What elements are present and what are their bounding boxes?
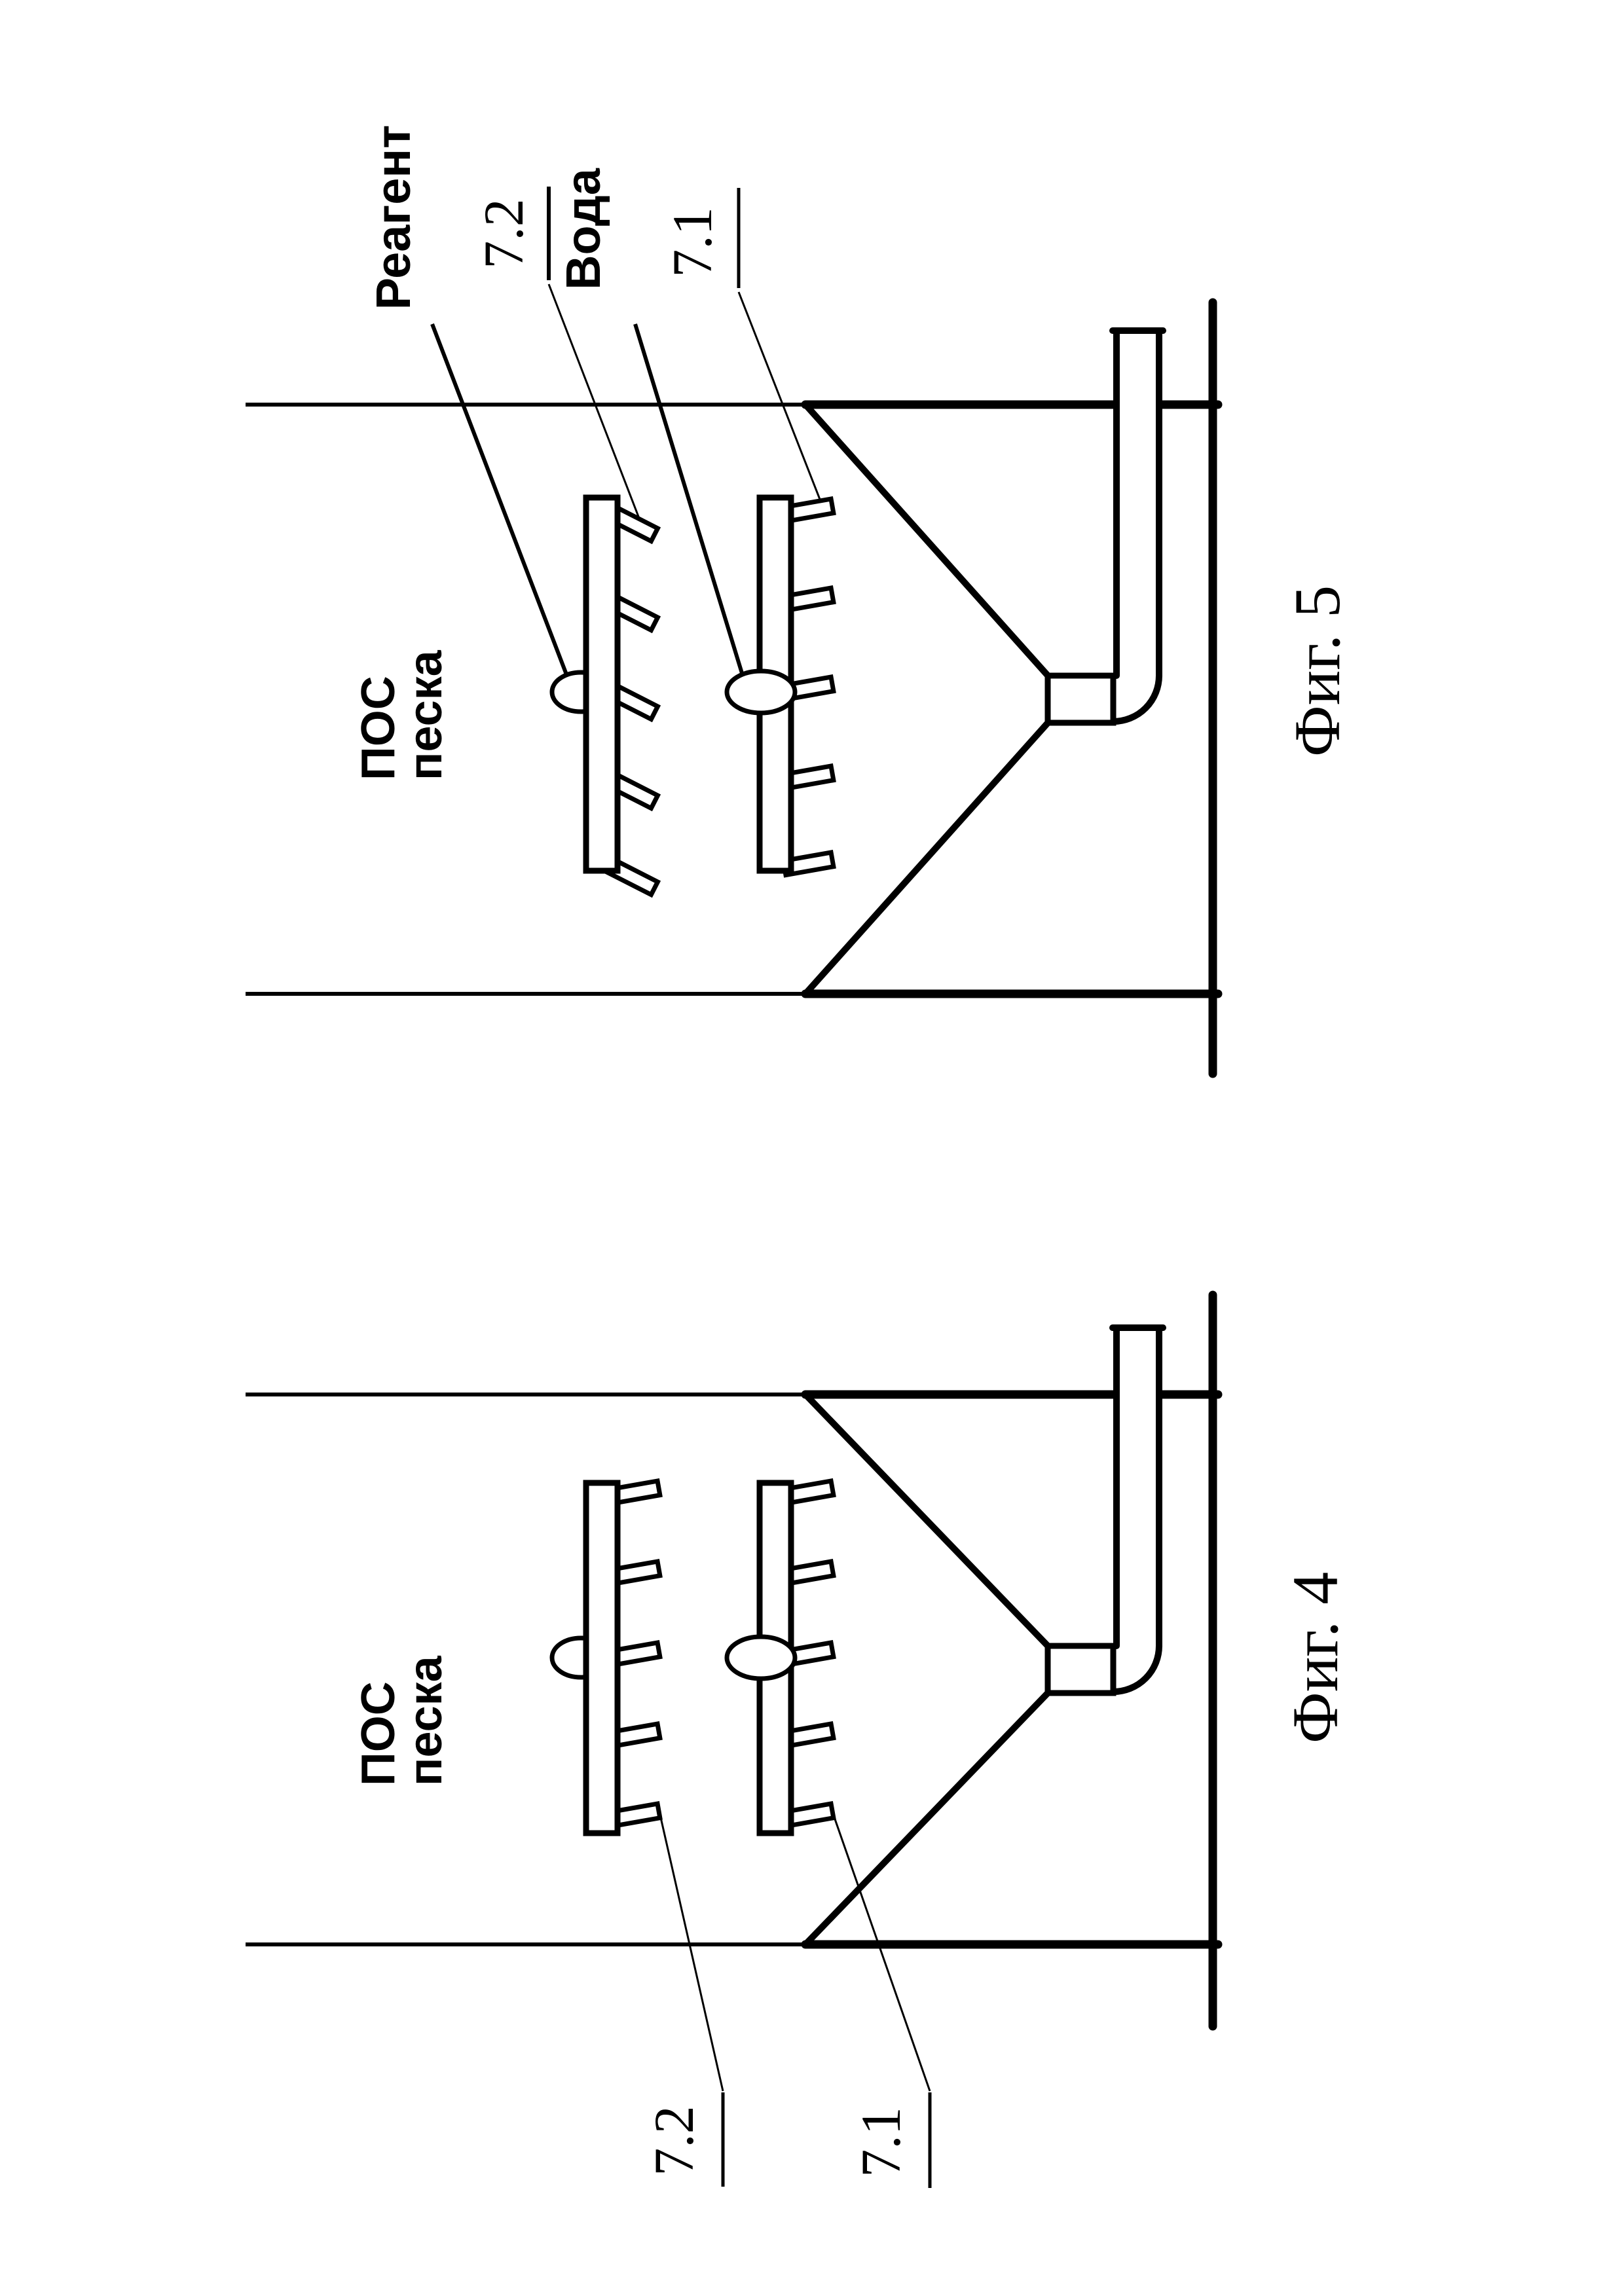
tank-content-label-line1: ПОС <box>352 676 405 780</box>
label-water: Вода <box>556 168 610 290</box>
tank-content-label-line2: песка <box>399 1655 452 1786</box>
elbow-outer-arc <box>1113 1646 1159 1692</box>
sparger-bar <box>586 1483 618 1833</box>
sparger-7-1 <box>727 498 834 875</box>
hopper-cone-lower-side <box>805 1692 1049 1944</box>
figure-5-caption: Фиг. 5 <box>1281 585 1354 757</box>
outlet-fitting <box>1048 676 1113 723</box>
hopper-cone-upper-side <box>805 405 1049 677</box>
label-reagent: Реагент <box>366 125 420 310</box>
reagent-leader-line <box>432 324 568 680</box>
drawing-canvas: Реагент 7.2 Вода 7.1 ПОС песка Фиг. 5 <box>0 0 1624 2296</box>
drain-pipe-body <box>1114 331 1158 674</box>
sparger-7-1 <box>727 1481 834 1833</box>
outlet-fitting <box>1048 1646 1113 1693</box>
tank-content-label-line1: ПОС <box>352 1681 405 1786</box>
patent-drawing-page: Реагент 7.2 Вода 7.1 ПОС песка Фиг. 5 <box>0 0 1624 2296</box>
ref-72-leader-line <box>660 1815 723 2091</box>
sparger-7-2 <box>552 1481 660 1833</box>
figure-4: 7.2 7.1 ПОС песка Фиг. 4 <box>246 1295 1352 2188</box>
figure-4-caption: Фиг. 4 <box>1279 1572 1352 1743</box>
label-ref-72: 7.2 <box>472 198 535 269</box>
hopper-cone-lower-side <box>805 721 1049 994</box>
label-ref-72: 7.2 <box>642 2105 705 2176</box>
tank-content-label-line2: песка <box>399 649 452 780</box>
supply-port-circle <box>727 671 795 713</box>
supply-port-circle <box>727 1637 795 1679</box>
ref-71-leader-line <box>833 1813 930 2091</box>
elbow-outer-arc <box>1113 676 1159 721</box>
label-ref-71: 7.1 <box>661 207 724 278</box>
sparger-7-2 <box>552 498 657 895</box>
drain-pipe-body <box>1114 1328 1158 1646</box>
label-ref-71: 7.1 <box>849 2107 912 2178</box>
figure-5: Реагент 7.2 Вода 7.1 ПОС песка Фиг. 5 <box>246 125 1354 1074</box>
sparger-bar <box>586 498 618 871</box>
hopper-cone-upper-side <box>805 1394 1049 1647</box>
